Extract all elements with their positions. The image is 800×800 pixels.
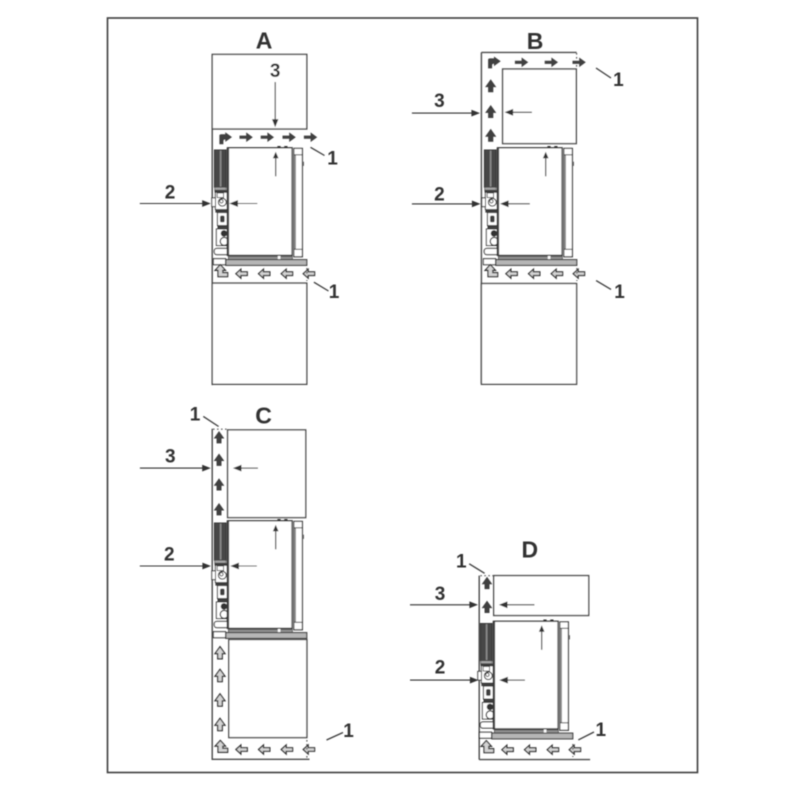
svg-text:3: 3 xyxy=(435,584,446,605)
svg-text:C: C xyxy=(255,402,272,428)
svg-text:1: 1 xyxy=(614,282,625,303)
svg-text:3: 3 xyxy=(270,61,281,82)
svg-text:B: B xyxy=(527,28,544,54)
svg-text:A: A xyxy=(256,28,273,54)
svg-text:1: 1 xyxy=(327,149,338,170)
svg-text:1: 1 xyxy=(596,720,607,741)
svg-text:1: 1 xyxy=(190,405,201,426)
svg-text:2: 2 xyxy=(164,544,175,565)
svg-text:2: 2 xyxy=(435,658,446,679)
svg-text:3: 3 xyxy=(165,446,176,467)
svg-text:1: 1 xyxy=(329,282,340,303)
svg-text:2: 2 xyxy=(165,183,176,204)
svg-text:1: 1 xyxy=(613,70,624,91)
svg-text:2: 2 xyxy=(434,185,445,206)
svg-text:1: 1 xyxy=(456,552,467,573)
svg-text:1: 1 xyxy=(343,721,354,742)
svg-text:3: 3 xyxy=(434,91,445,112)
svg-text:D: D xyxy=(521,537,538,563)
